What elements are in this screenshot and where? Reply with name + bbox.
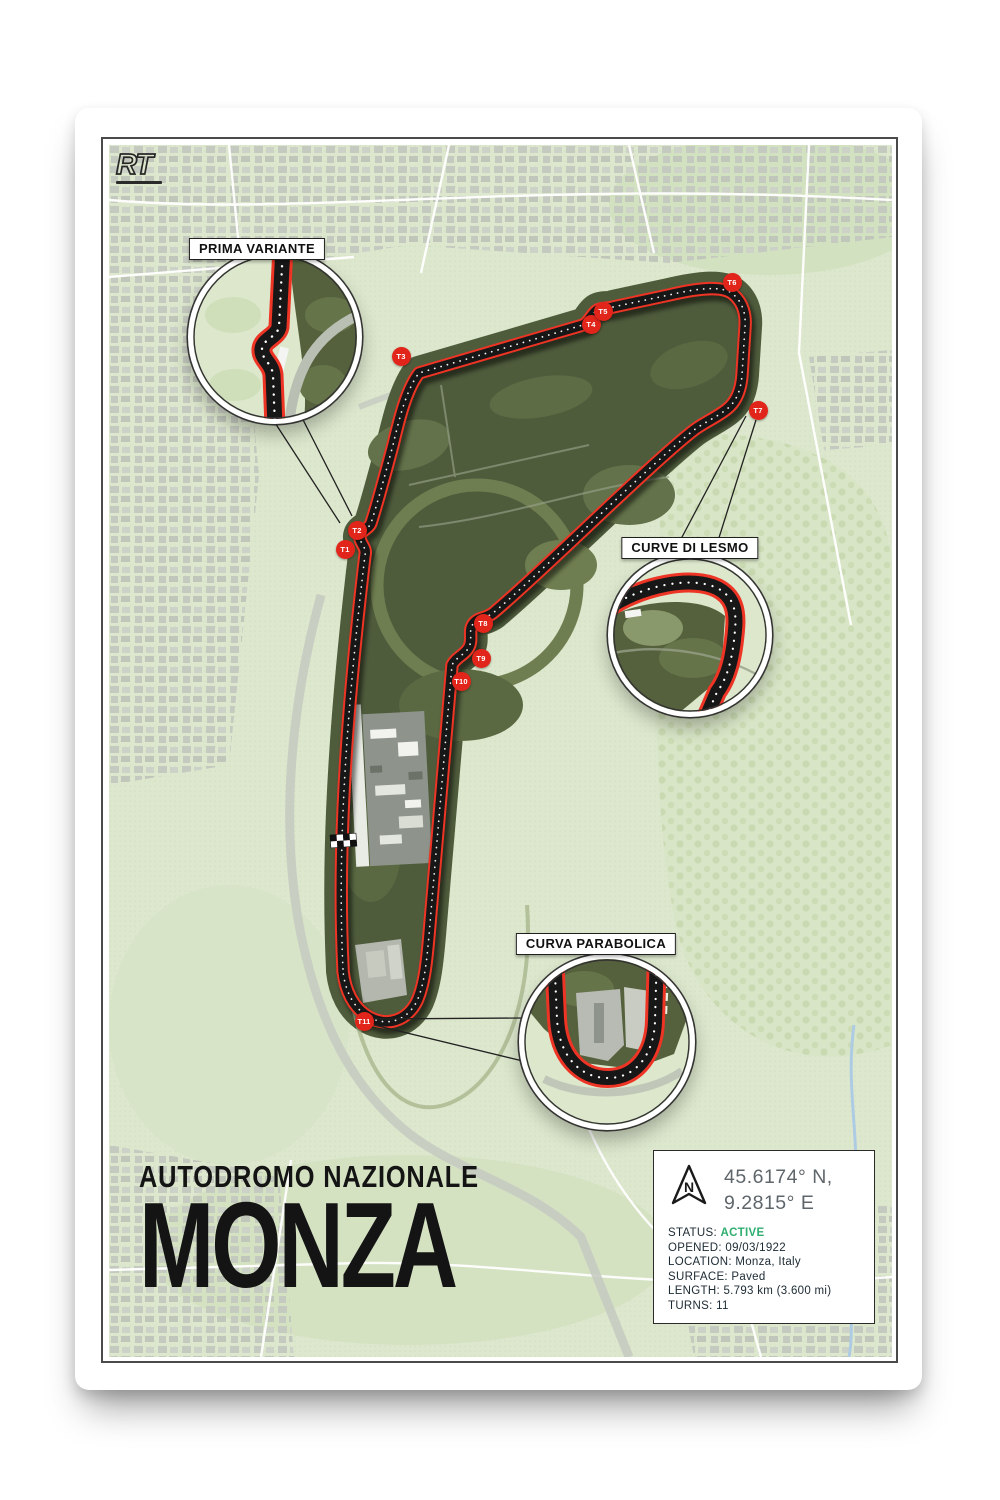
info-label: LENGTH:	[668, 1285, 720, 1297]
info-row-length: LENGTH: 5.793 km (3.600 mi)	[668, 1284, 860, 1298]
turn-marker-t3: T3	[392, 347, 411, 366]
info-row-status: STATUS: ACTIVE	[668, 1226, 860, 1240]
inset-label-curve-di-lesmo: CURVE DI LESMO	[621, 537, 758, 559]
info-row-surface: SURFACE: Paved	[668, 1270, 860, 1284]
inset-map-curve-di-lesmo	[613, 558, 767, 712]
info-label: TURNS:	[668, 1300, 713, 1312]
brand-logo: RT	[116, 151, 162, 184]
info-row-opened: OPENED: 09/03/1922	[668, 1241, 860, 1255]
inset-circle-curve-di-lesmo	[608, 553, 772, 717]
paddock-layer	[348, 701, 432, 867]
north-arrow-icon: N	[668, 1163, 710, 1207]
info-header: N 45.6174° N, 9.2815° E	[668, 1163, 860, 1216]
page-title: MONZA	[139, 1194, 455, 1296]
status-badge: ACTIVE	[720, 1227, 764, 1239]
info-box: N 45.6174° N, 9.2815° E STATUS: ACTIVE O…	[653, 1150, 875, 1324]
turn-marker-t6: T6	[723, 273, 742, 292]
inset-map-curva-parabolica	[524, 959, 690, 1125]
start-finish-checker	[330, 833, 357, 848]
inset-circle-curva-parabolica	[519, 954, 695, 1130]
info-row-turns: TURNS: 11	[668, 1299, 860, 1313]
turn-marker-t5: T5	[594, 302, 613, 321]
poster: RT T1 T2 T3 T4 T5 T6 T7 T8 T9 T10 T11 PR…	[75, 108, 922, 1390]
title-block: AUTODROMO NAZIONALE MONZA	[139, 1161, 566, 1296]
info-value: Monza, Italy	[735, 1256, 801, 1268]
parabolica-parking	[355, 939, 407, 1003]
info-label: LOCATION:	[668, 1256, 732, 1268]
turn-marker-t9: T9	[472, 649, 491, 668]
turn-marker-t10: T10	[452, 672, 471, 691]
inset-circle-prima-variante	[188, 250, 362, 424]
brand-tagline-bar	[116, 181, 162, 184]
inset-label-curva-parabolica: CURVA PARABOLICA	[516, 933, 676, 955]
coordinates-line-2: 9.2815° E	[724, 1191, 833, 1217]
info-label: STATUS:	[668, 1227, 717, 1239]
info-value: 11	[716, 1300, 729, 1312]
turn-marker-t11: T11	[355, 1012, 374, 1031]
inset-map-prima-variante	[193, 255, 357, 419]
info-value: 5.793 km (3.600 mi)	[723, 1285, 831, 1297]
svg-text:N: N	[684, 1179, 694, 1195]
info-rows: STATUS: ACTIVE OPENED: 09/03/1922 LOCATI…	[668, 1226, 860, 1312]
turn-marker-t2: T2	[348, 521, 367, 540]
info-label: SURFACE:	[668, 1271, 728, 1283]
turn-marker-t1: T1	[336, 540, 355, 559]
info-row-location: LOCATION: Monza, Italy	[668, 1255, 860, 1269]
inset-label-prima-variante: PRIMA VARIANTE	[189, 238, 325, 260]
coordinates-line-1: 45.6174° N,	[724, 1165, 833, 1191]
turn-marker-t8: T8	[474, 614, 493, 633]
coordinates: 45.6174° N, 9.2815° E	[724, 1165, 833, 1216]
info-value: Paved	[731, 1271, 765, 1283]
map-area: RT T1 T2 T3 T4 T5 T6 T7 T8 T9 T10 T11 PR…	[109, 145, 892, 1357]
info-label: OPENED:	[668, 1242, 722, 1254]
turn-marker-t7: T7	[749, 401, 768, 420]
brand-logo-text: RT	[116, 151, 162, 180]
info-value: 09/03/1922	[725, 1242, 786, 1254]
